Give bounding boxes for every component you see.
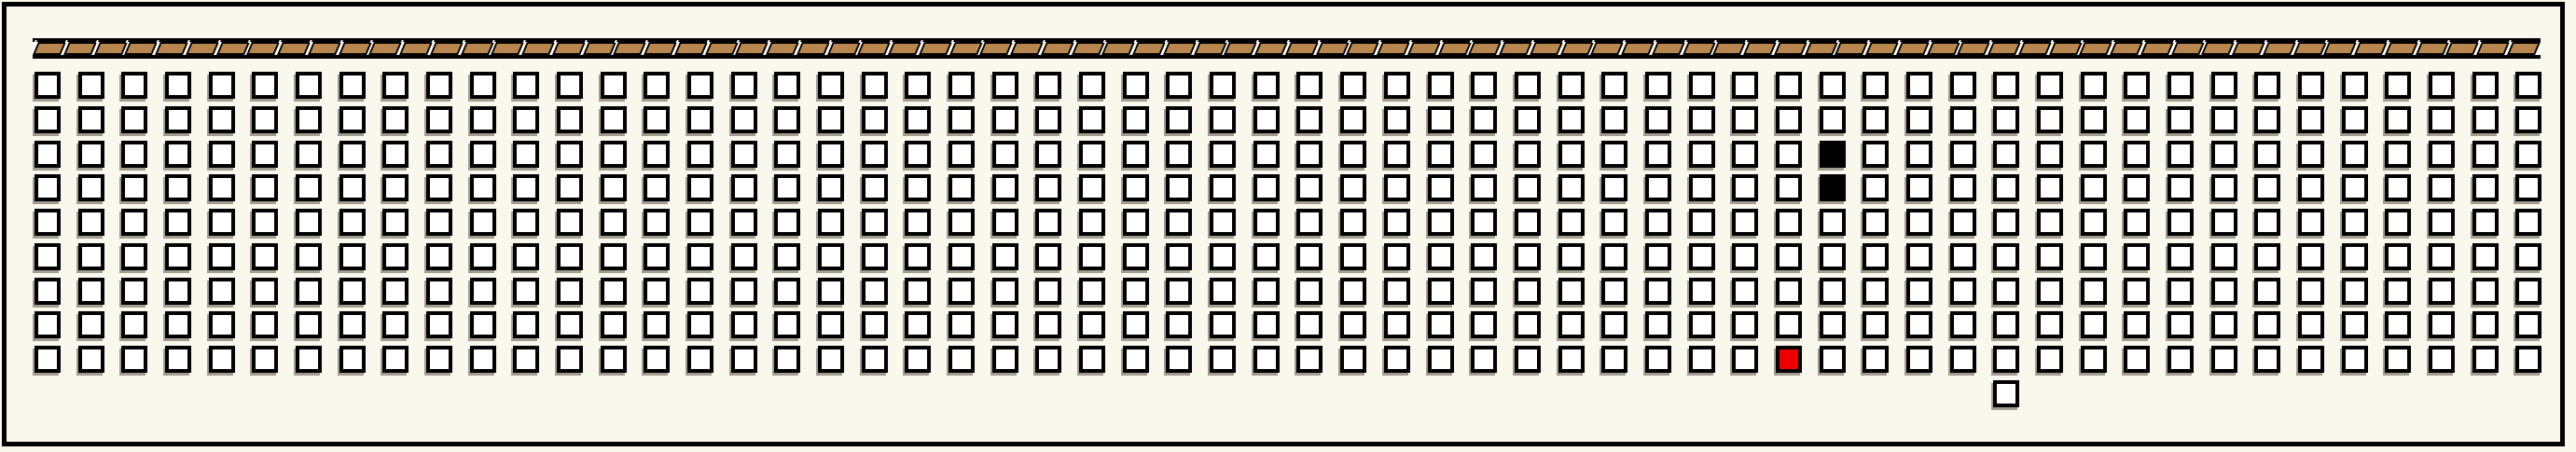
grid-cell[interactable] [1035,174,1061,201]
grid-cell[interactable] [1340,106,1366,133]
grid-cell[interactable] [1950,346,1976,373]
grid-cell[interactable] [1601,311,1627,338]
grid-cell[interactable] [35,311,61,338]
grid-cell[interactable] [1558,209,1585,236]
grid-cell[interactable] [1123,106,1149,133]
grid-cell[interactable] [252,243,278,270]
grid-cell[interactable] [992,72,1018,99]
grid-cell[interactable] [1384,141,1410,168]
grid-cell[interactable] [601,209,627,236]
grid-cell[interactable] [2472,141,2499,168]
grid-cell[interactable] [2342,243,2368,270]
grid-cell[interactable] [2211,72,2237,99]
grid-cell[interactable] [992,278,1018,305]
grid-cell[interactable] [1035,72,1061,99]
grid-cell[interactable] [470,346,496,373]
grid-cell[interactable] [1079,106,1105,133]
grid-cell[interactable] [2254,141,2280,168]
grid-cell[interactable] [2298,346,2324,373]
grid-cell[interactable] [1515,346,1541,373]
grid-cell[interactable] [774,346,800,373]
grid-cell[interactable] [2167,278,2194,305]
grid-cell[interactable] [2515,106,2541,133]
grid-cell[interactable] [2342,141,2368,168]
grid-cell[interactable] [1471,346,1497,373]
grid-cell[interactable] [1689,72,1715,99]
grid-cell[interactable] [1558,72,1585,99]
grid-cell[interactable] [35,72,61,99]
grid-cell[interactable] [1123,141,1149,168]
grid-cell[interactable] [1123,278,1149,305]
grid-cell[interactable] [2037,106,2063,133]
grid-cell[interactable] [2211,106,2237,133]
grid-cell[interactable] [2124,278,2150,305]
grid-cell[interactable] [2211,209,2237,236]
grid-cell[interactable] [1079,278,1105,305]
grid-cell[interactable] [1035,209,1061,236]
grid-cell[interactable] [2342,209,2368,236]
grid-cell[interactable] [252,346,278,373]
grid-cell[interactable] [339,346,366,373]
grid-cell[interactable] [1776,278,1802,305]
grid-cell[interactable] [2298,278,2324,305]
grid-cell[interactable] [992,209,1018,236]
grid-cell[interactable] [1296,209,1323,236]
grid-cell[interactable] [339,141,366,168]
grid-cell[interactable] [1863,243,1889,270]
grid-cell-marked-red[interactable] [1776,346,1802,373]
grid-cell[interactable] [601,106,627,133]
grid-cell[interactable] [2515,243,2541,270]
grid-cell[interactable] [2254,346,2280,373]
grid-cell[interactable] [731,174,757,201]
grid-cell[interactable] [382,141,409,168]
grid-cell[interactable] [949,278,975,305]
grid-cell[interactable] [1166,106,1192,133]
grid-cell[interactable] [1166,209,1192,236]
grid-cell[interactable] [2298,72,2324,99]
grid-cell[interactable] [209,311,235,338]
grid-cell[interactable] [2429,174,2455,201]
grid-cell[interactable] [2385,311,2411,338]
grid-cell[interactable] [2472,72,2499,99]
grid-cell[interactable] [731,141,757,168]
grid-cell[interactable] [1340,311,1366,338]
grid-cell[interactable] [470,141,496,168]
grid-cell[interactable] [557,243,583,270]
grid-cell[interactable] [1471,311,1497,338]
grid-cell[interactable] [1732,278,1758,305]
grid-cell[interactable] [2472,243,2499,270]
grid-cell[interactable] [949,106,975,133]
grid-cell[interactable] [1950,311,1976,338]
grid-cell[interactable] [1166,311,1192,338]
grid-cell[interactable] [382,278,409,305]
grid-cell[interactable] [1863,311,1889,338]
grid-cell[interactable] [78,346,104,373]
grid-cell[interactable] [2037,346,2063,373]
grid-cell[interactable] [731,209,757,236]
grid-cell[interactable] [35,243,61,270]
grid-cell[interactable] [862,346,888,373]
grid-cell[interactable] [1253,72,1280,99]
grid-cell[interactable] [1166,346,1192,373]
grid-cell[interactable] [905,141,931,168]
grid-cell[interactable] [862,106,888,133]
grid-cell[interactable] [2124,141,2150,168]
grid-cell[interactable] [382,346,409,373]
grid-cell[interactable] [644,243,670,270]
grid-cell[interactable] [1689,209,1715,236]
grid-cell[interactable] [2429,106,2455,133]
grid-cell[interactable] [1384,311,1410,338]
grid-cell[interactable] [2385,243,2411,270]
grid-cell[interactable] [1950,106,1976,133]
grid-cell[interactable] [687,72,713,99]
grid-cell[interactable] [2385,209,2411,236]
grid-cell[interactable] [1296,243,1323,270]
grid-cell[interactable] [513,311,539,338]
grid-cell[interactable] [862,72,888,99]
grid-cell[interactable] [1601,243,1627,270]
grid-cell[interactable] [687,243,713,270]
grid-cell[interactable] [731,346,757,373]
grid-cell[interactable] [949,346,975,373]
grid-cell[interactable] [1950,174,1976,201]
grid-cell[interactable] [1123,209,1149,236]
grid-cell[interactable] [601,72,627,99]
grid-cell[interactable] [1035,311,1061,338]
grid-cell[interactable] [2342,174,2368,201]
grid-cell[interactable] [1079,141,1105,168]
grid-cell[interactable] [818,346,844,373]
grid-cell[interactable] [2254,174,2280,201]
grid-cell[interactable] [426,141,452,168]
grid-cell[interactable] [1558,278,1585,305]
grid-cell[interactable] [601,278,627,305]
grid-cell[interactable] [2429,278,2455,305]
grid-cell[interactable] [601,174,627,201]
grid-cell[interactable] [862,209,888,236]
grid-cell[interactable] [1210,346,1236,373]
grid-cell[interactable] [905,346,931,373]
grid-cell[interactable] [557,209,583,236]
grid-cell[interactable] [687,106,713,133]
grid-cell[interactable] [1340,141,1366,168]
grid-cell[interactable] [1210,311,1236,338]
grid-cell[interactable] [252,141,278,168]
grid-cell[interactable] [1079,72,1105,99]
grid-cell[interactable] [774,72,800,99]
grid-cell[interactable] [1820,106,1846,133]
grid-cell[interactable] [296,72,322,99]
grid-cell[interactable] [1906,311,1932,338]
grid-cell[interactable] [1210,243,1236,270]
grid-cell[interactable] [644,141,670,168]
grid-cell[interactable] [1950,141,1976,168]
grid-cell[interactable] [1340,209,1366,236]
grid-cell[interactable] [818,106,844,133]
grid-cell[interactable] [165,346,191,373]
grid-cell[interactable] [1428,72,1454,99]
grid-cell[interactable] [905,278,931,305]
grid-cell[interactable] [78,243,104,270]
grid-cell[interactable] [2515,346,2541,373]
grid-cell[interactable] [2429,209,2455,236]
grid-cell[interactable] [949,209,975,236]
grid-cell[interactable] [296,346,322,373]
grid-cell[interactable] [1993,141,2019,168]
grid-cell[interactable] [1296,346,1323,373]
grid-cell[interactable] [949,72,975,99]
grid-cell[interactable] [1558,346,1585,373]
grid-cell[interactable] [1950,243,1976,270]
grid-cell[interactable] [2472,346,2499,373]
grid-cell[interactable] [296,174,322,201]
grid-cell[interactable] [382,243,409,270]
grid-cell[interactable] [774,141,800,168]
grid-cell[interactable] [1732,346,1758,373]
grid-cell[interactable] [1296,106,1323,133]
grid-cell[interactable] [1428,278,1454,305]
grid-cell[interactable] [35,141,61,168]
grid-cell[interactable] [2037,174,2063,201]
grid-cell[interactable] [1820,209,1846,236]
grid-cell[interactable] [2342,72,2368,99]
grid-cell[interactable] [470,174,496,201]
grid-cell[interactable] [1689,174,1715,201]
grid-cell[interactable] [1776,141,1802,168]
grid-cell[interactable] [35,106,61,133]
grid-cell[interactable] [1296,278,1323,305]
grid-cell[interactable] [2167,209,2194,236]
grid-cell[interactable] [992,106,1018,133]
grid-cell[interactable] [296,106,322,133]
grid-cell[interactable] [35,174,61,201]
grid-cell[interactable] [121,243,147,270]
grid-cell[interactable] [513,106,539,133]
grid-cell[interactable] [2429,72,2455,99]
grid-cell[interactable] [2342,278,2368,305]
grid-cell[interactable] [1820,72,1846,99]
grid-cell[interactable] [687,174,713,201]
grid-cell[interactable] [470,311,496,338]
grid-cell[interactable] [382,209,409,236]
grid-cell[interactable] [2429,243,2455,270]
grid-cell[interactable] [1863,174,1889,201]
grid-cell[interactable] [339,209,366,236]
grid-cell[interactable] [165,243,191,270]
grid-cell[interactable] [2254,106,2280,133]
grid-cell[interactable] [252,311,278,338]
grid-cell[interactable] [2167,141,2194,168]
grid-cell[interactable] [165,106,191,133]
grid-cell[interactable] [1906,278,1932,305]
grid-cell[interactable] [774,278,800,305]
grid-cell[interactable] [1471,174,1497,201]
grid-cell[interactable] [687,346,713,373]
grid-cell[interactable] [1863,72,1889,99]
grid-cell[interactable] [992,174,1018,201]
grid-cell[interactable] [1863,346,1889,373]
grid-cell[interactable] [949,243,975,270]
grid-cell[interactable] [513,243,539,270]
grid-cell[interactable] [209,243,235,270]
grid-cell[interactable] [2515,278,2541,305]
grid-cell[interactable] [2124,174,2150,201]
grid-cell[interactable] [2167,346,2194,373]
grid-cell[interactable] [1993,209,2019,236]
grid-cell[interactable] [1776,174,1802,201]
grid-cell[interactable] [426,72,452,99]
grid-cell[interactable] [1689,141,1715,168]
grid-cell[interactable] [78,209,104,236]
grid-cell[interactable] [949,311,975,338]
grid-cell[interactable] [296,141,322,168]
grid-cell[interactable] [1645,106,1671,133]
grid-cell[interactable] [1645,174,1671,201]
grid-cell[interactable] [2515,141,2541,168]
grid-cell[interactable] [1645,346,1671,373]
grid-cell[interactable] [209,209,235,236]
grid-cell[interactable] [1079,311,1105,338]
grid-cell[interactable] [1340,243,1366,270]
grid-cell[interactable] [1993,278,2019,305]
grid-cell[interactable] [165,311,191,338]
grid-cell[interactable] [426,106,452,133]
grid-cell[interactable] [426,311,452,338]
grid-cell[interactable] [2037,209,2063,236]
grid-cell[interactable] [252,209,278,236]
grid-cell[interactable] [1732,311,1758,338]
grid-cell[interactable] [1428,209,1454,236]
grid-cell[interactable] [1515,174,1541,201]
grid-cell[interactable] [252,106,278,133]
grid-cell[interactable] [1601,72,1627,99]
grid-cell[interactable] [209,278,235,305]
grid-cell[interactable] [1558,311,1585,338]
grid-cell[interactable] [2472,311,2499,338]
grid-cell[interactable] [1035,106,1061,133]
grid-cell[interactable] [165,174,191,201]
grid-cell[interactable] [862,311,888,338]
grid-cell[interactable] [644,174,670,201]
grid-cell[interactable] [1079,346,1105,373]
grid-cell[interactable] [1776,106,1802,133]
grid-cell[interactable] [2124,311,2150,338]
grid-cell[interactable] [513,72,539,99]
grid-cell[interactable] [513,278,539,305]
grid-cell[interactable] [1123,311,1149,338]
grid-cell[interactable] [426,209,452,236]
grid-cell[interactable] [818,278,844,305]
grid-cell[interactable] [339,174,366,201]
grid-cell[interactable] [470,278,496,305]
grid-cell[interactable] [774,209,800,236]
grid-cell[interactable] [2124,346,2150,373]
grid-cell[interactable] [209,346,235,373]
grid-cell[interactable] [1079,174,1105,201]
grid-cell[interactable] [296,243,322,270]
grid-cell[interactable] [557,278,583,305]
grid-cell[interactable] [2298,311,2324,338]
grid-cell[interactable] [209,141,235,168]
grid-cell[interactable] [1689,311,1715,338]
grid-cell[interactable] [165,209,191,236]
grid-cell[interactable] [992,311,1018,338]
grid-cell[interactable] [862,174,888,201]
grid-cell[interactable] [1253,278,1280,305]
grid-cell[interactable] [1123,346,1149,373]
grid-cell[interactable] [1993,106,2019,133]
grid-cell[interactable] [1515,106,1541,133]
grid-cell[interactable] [644,209,670,236]
grid-cell[interactable] [2342,106,2368,133]
grid-cell-marked-black[interactable] [1820,141,1846,168]
grid-cell[interactable] [2298,106,2324,133]
grid-cell[interactable] [1253,141,1280,168]
grid-cell[interactable] [2081,174,2107,201]
grid-cell[interactable] [557,72,583,99]
grid-cell[interactable] [2081,278,2107,305]
grid-cell[interactable] [1296,174,1323,201]
grid-cell[interactable] [2472,106,2499,133]
grid-cell[interactable] [339,106,366,133]
grid-cell[interactable] [1776,243,1802,270]
grid-cell[interactable] [165,278,191,305]
grid-cell[interactable] [1471,209,1497,236]
grid-cell[interactable] [1253,311,1280,338]
grid-cell[interactable] [78,72,104,99]
grid-cell[interactable] [557,311,583,338]
grid-cell[interactable] [426,346,452,373]
grid-cell[interactable] [35,278,61,305]
grid-cell[interactable] [1253,106,1280,133]
grid-cell[interactable] [557,141,583,168]
grid-cell[interactable] [2342,346,2368,373]
grid-cell[interactable] [252,174,278,201]
grid-cell[interactable] [2211,278,2237,305]
grid-cell[interactable] [2472,278,2499,305]
grid-cell[interactable] [1950,72,1976,99]
grid-cell[interactable] [1515,243,1541,270]
grid-cell[interactable] [1776,72,1802,99]
grid-cell[interactable] [1515,72,1541,99]
grid-cell[interactable] [513,141,539,168]
grid-cell[interactable] [557,174,583,201]
grid-cell[interactable] [1384,346,1410,373]
grid-cell[interactable] [1906,243,1932,270]
grid-cell[interactable] [1428,311,1454,338]
grid-cell[interactable] [774,174,800,201]
grid-cell[interactable] [1428,346,1454,373]
grid-cell[interactable] [2167,72,2194,99]
grid-cell[interactable] [2385,278,2411,305]
grid-cell-offset[interactable] [1993,380,2019,407]
grid-cell[interactable] [2081,141,2107,168]
grid-cell[interactable] [1601,174,1627,201]
grid-cell[interactable] [687,209,713,236]
grid-cell[interactable] [2037,72,2063,99]
grid-cell[interactable] [2037,311,2063,338]
grid-cell[interactable] [905,174,931,201]
grid-cell[interactable] [2298,174,2324,201]
grid-cell[interactable] [2515,209,2541,236]
grid-cell[interactable] [1645,311,1671,338]
grid-cell[interactable] [78,174,104,201]
grid-cell[interactable] [1558,106,1585,133]
grid-cell[interactable] [1515,311,1541,338]
